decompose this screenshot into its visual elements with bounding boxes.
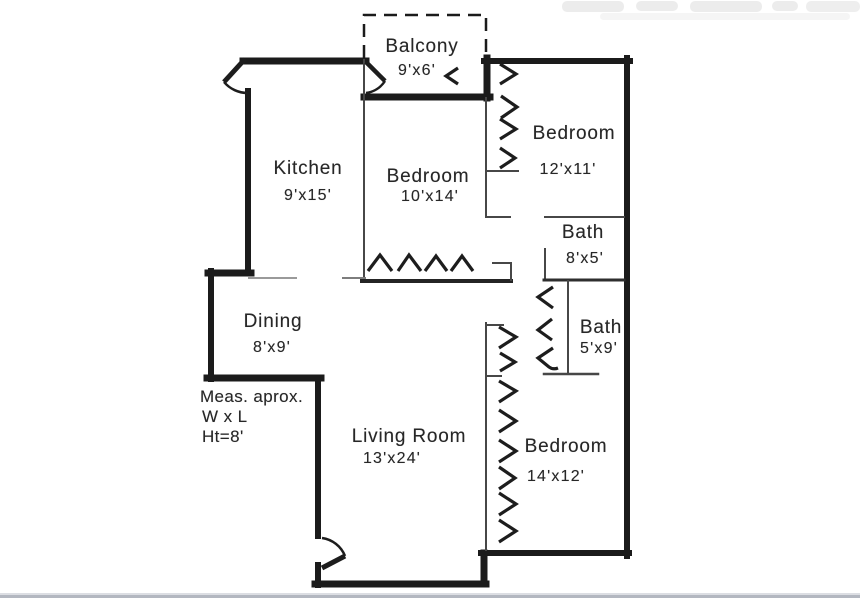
room-dims-bedroom-12x11: 12'x11' [540, 161, 597, 179]
room-dims-bedroom-14x12: 14'x12' [527, 468, 585, 486]
room-dims-living-room: 13'x24' [363, 450, 421, 468]
measurement-note-line1: Meas. aprox. [200, 387, 303, 407]
chevron-right-icon [500, 64, 516, 84]
chevron-right-icon [500, 119, 516, 139]
chevron-left-icon [446, 68, 458, 84]
room-label-bedroom-14x12: Bedroom [525, 436, 608, 458]
door-leaf [366, 62, 385, 81]
room-label-bedroom-12x11: Bedroom [533, 123, 616, 145]
floor-plan-drawing [0, 0, 860, 600]
chevron-right-icon [500, 353, 515, 371]
chevron-up-icon [398, 255, 421, 271]
room-label-living-room: Living Room [352, 426, 466, 448]
chevron-right-icon [499, 520, 516, 542]
room-label-bath-8x5: Bath [562, 222, 604, 244]
balcony-chevron [446, 68, 458, 84]
door-arc [224, 82, 248, 93]
chevron-up-icon [451, 256, 473, 271]
measurement-note-line2: W x L [202, 407, 247, 427]
entry-door-swing-icon [322, 538, 345, 568]
chevron-right-icon [500, 148, 515, 168]
chevron-right-icon [499, 493, 516, 515]
room-label-dining: Dining [244, 311, 303, 333]
chevron-left-icon [538, 319, 552, 340]
door-leaf [322, 556, 345, 568]
room-label-bath-5x9: Bath [580, 317, 622, 339]
room-dims-balcony: 9'x6' [398, 62, 436, 80]
measurement-note-line3: Ht=8' [202, 427, 244, 447]
room-dims-bath-8x5: 8'x5' [566, 250, 604, 268]
floor-plan: Balcony 9'x6' Kitchen 9'x15' Bedroom 10'… [0, 0, 860, 600]
chevron-up-icon [368, 255, 392, 271]
door-leaf [224, 59, 245, 82]
room-label-balcony: Balcony [385, 36, 458, 58]
chevron-up-icon [425, 256, 447, 271]
room-dims-kitchen: 9'x15' [284, 187, 332, 205]
wall-closet-notch [493, 263, 511, 280]
room-dims-dining: 8'x9' [253, 339, 291, 357]
bath5x9-chevrons [538, 287, 558, 369]
door-arc [322, 538, 345, 556]
bedroom10x14-closet-chevrons [368, 255, 473, 271]
chevron-left-icon [538, 287, 553, 308]
chevron-right-icon [499, 381, 516, 402]
footer-rule [0, 595, 860, 598]
chevron-right-icon [499, 410, 516, 432]
balcony-door-swing-icon [366, 62, 385, 93]
bedroom12x11-closet-chevrons [500, 64, 517, 168]
door-arc [366, 81, 385, 93]
room-label-kitchen: Kitchen [274, 158, 343, 180]
chevron-left-icon [538, 348, 558, 369]
bedroom14x12-closet-chevrons [499, 327, 516, 542]
chevron-right-icon [499, 440, 516, 462]
chevron-right-icon [499, 467, 515, 489]
room-dims-bath-5x9: 5'x9' [580, 340, 618, 358]
room-dims-bedroom-10x14: 10'x14' [401, 188, 459, 206]
chevron-right-icon [499, 327, 516, 348]
room-label-bedroom-10x14: Bedroom [387, 166, 470, 188]
chevron-right-icon [501, 96, 517, 118]
